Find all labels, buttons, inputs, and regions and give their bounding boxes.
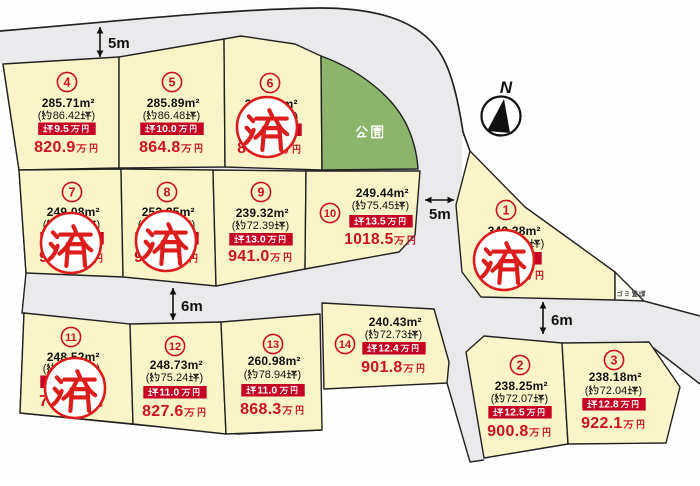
svg-text:14: 14 <box>339 339 352 351</box>
svg-text:868.3: 868.3 <box>240 401 282 418</box>
svg-text:): ) <box>406 200 410 212</box>
svg-text:(: ( <box>143 110 147 122</box>
svg-text:): ) <box>545 393 549 405</box>
svg-text:): ) <box>419 329 423 341</box>
svg-text:5m: 5m <box>108 35 130 52</box>
svg-text:922.1: 922.1 <box>581 415 623 432</box>
svg-text:5: 5 <box>169 76 176 90</box>
svg-text:2: 2 <box>517 359 524 373</box>
svg-text:13.5: 13.5 <box>365 216 386 228</box>
svg-text:(: ( <box>232 220 236 232</box>
svg-text:7: 7 <box>69 186 76 200</box>
svg-text:12.5: 12.5 <box>504 407 525 419</box>
svg-text:9: 9 <box>258 186 265 200</box>
svg-text:): ) <box>286 220 290 232</box>
svg-text:(: ( <box>352 200 356 212</box>
svg-text:78.94: 78.94 <box>259 369 287 381</box>
svg-text:4: 4 <box>64 76 71 90</box>
svg-text:(: ( <box>491 393 495 405</box>
svg-text:86.48: 86.48 <box>158 110 186 122</box>
svg-text:72.07: 72.07 <box>506 393 534 405</box>
svg-text:6m: 6m <box>181 298 203 315</box>
svg-text:820.9: 820.9 <box>34 139 76 156</box>
svg-text:10.0: 10.0 <box>156 123 177 135</box>
svg-text:72.73: 72.73 <box>380 329 408 341</box>
svg-text:(: ( <box>244 369 248 381</box>
svg-text:238.18m²: 238.18m² <box>589 370 642 384</box>
svg-text:13.0: 13.0 <box>245 234 266 246</box>
svg-text:75.24: 75.24 <box>161 372 189 384</box>
svg-text:5m: 5m <box>429 206 451 223</box>
svg-text:240.43m²: 240.43m² <box>369 315 422 329</box>
svg-text:11.0: 11.0 <box>159 387 179 399</box>
svg-text:(: ( <box>43 363 47 375</box>
svg-text:(: ( <box>146 372 150 384</box>
svg-text:86.42: 86.42 <box>53 110 81 122</box>
svg-text:72.39: 72.39 <box>247 220 275 232</box>
svg-text:10: 10 <box>324 208 336 220</box>
svg-text:13: 13 <box>267 339 279 351</box>
svg-text:941.0: 941.0 <box>228 248 270 265</box>
svg-text:9.5: 9.5 <box>54 123 69 135</box>
svg-text:285.71m²: 285.71m² <box>42 96 95 110</box>
svg-text:): ) <box>298 369 302 381</box>
svg-text:N: N <box>500 78 513 97</box>
svg-text:900.8: 900.8 <box>487 423 529 440</box>
svg-text:6: 6 <box>267 77 274 91</box>
svg-text:(: ( <box>585 385 589 397</box>
svg-text:260.98m²: 260.98m² <box>248 354 301 368</box>
svg-text:12.8: 12.8 <box>598 399 619 411</box>
svg-text:239.32m²: 239.32m² <box>236 206 289 220</box>
svg-text:): ) <box>200 372 204 384</box>
svg-text:238.25m²: 238.25m² <box>495 379 548 393</box>
svg-text:): ) <box>639 385 643 397</box>
svg-text:): ) <box>541 238 545 250</box>
svg-text:11: 11 <box>65 332 77 344</box>
svg-text:901.8: 901.8 <box>361 359 403 376</box>
svg-text:12: 12 <box>169 341 181 353</box>
svg-text:): ) <box>92 110 96 122</box>
svg-text:1: 1 <box>503 204 510 218</box>
svg-text:285.89m²: 285.89m² <box>147 96 200 110</box>
svg-text:3: 3 <box>611 354 618 368</box>
svg-text:864.8: 864.8 <box>139 139 181 156</box>
svg-text:12.4: 12.4 <box>378 343 399 355</box>
svg-text:): ) <box>197 110 201 122</box>
svg-text:1018.5: 1018.5 <box>344 231 393 248</box>
svg-text:248.73m²: 248.73m² <box>150 358 203 372</box>
svg-text:(: ( <box>38 110 42 122</box>
svg-text:827.6: 827.6 <box>142 403 184 420</box>
svg-text:72.04: 72.04 <box>600 385 628 397</box>
svg-text:75.45: 75.45 <box>367 200 395 212</box>
svg-text:249.44m²: 249.44m² <box>356 186 409 200</box>
svg-text:8: 8 <box>164 186 171 200</box>
svg-text:11.0: 11.0 <box>257 385 277 397</box>
svg-text:6m: 6m <box>551 312 573 329</box>
svg-text:(: ( <box>365 329 369 341</box>
